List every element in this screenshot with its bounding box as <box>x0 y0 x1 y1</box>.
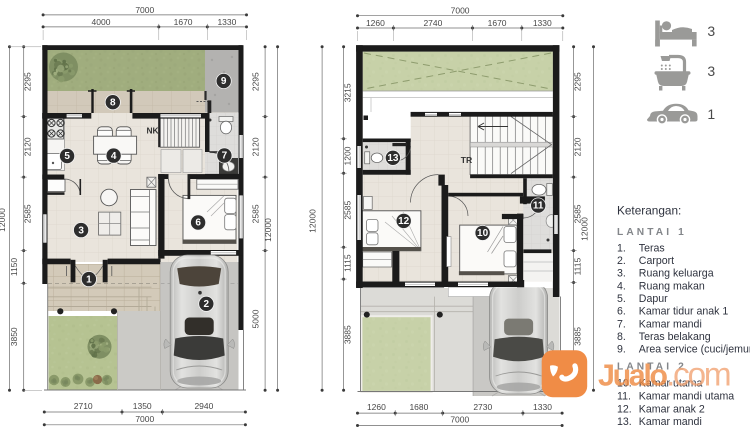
svg-text:6: 6 <box>195 218 201 229</box>
svg-text:5000: 5000 <box>250 309 260 328</box>
svg-text:NK: NK <box>146 126 158 136</box>
svg-text:7000: 7000 <box>135 414 154 424</box>
svg-text:1115: 1115 <box>572 258 582 276</box>
svg-text:3215: 3215 <box>342 83 352 102</box>
svg-text:12000: 12000 <box>579 217 589 241</box>
svg-text:Kamar anak 2: Kamar anak 2 <box>639 403 705 415</box>
svg-text:Kamar tidur anak 1: Kamar tidur anak 1 <box>639 306 729 318</box>
svg-text:Keterangan:: Keterangan: <box>617 204 681 218</box>
svg-text:1260: 1260 <box>366 18 385 28</box>
svg-text:Teras belakang: Teras belakang <box>639 331 711 343</box>
svg-text:5: 5 <box>64 151 70 162</box>
svg-text:9: 9 <box>221 76 227 87</box>
svg-text:2585: 2585 <box>250 204 260 223</box>
svg-text:3885: 3885 <box>342 325 352 344</box>
svg-text:7: 7 <box>222 151 228 162</box>
svg-text:3885: 3885 <box>572 327 582 346</box>
svg-text:Teras: Teras <box>639 242 665 254</box>
svg-text:Kamar mandi: Kamar mandi <box>639 318 702 330</box>
svg-text:Ruang makan: Ruang makan <box>639 280 705 292</box>
svg-text:8: 8 <box>110 97 116 108</box>
svg-text:1670: 1670 <box>174 17 193 27</box>
svg-text:13.: 13. <box>617 416 632 428</box>
svg-text:7.: 7. <box>617 318 626 330</box>
svg-text:7000: 7000 <box>451 6 470 16</box>
svg-text:.com: .com <box>666 357 730 394</box>
svg-text:1680: 1680 <box>409 402 428 412</box>
svg-text:1200: 1200 <box>342 146 352 165</box>
svg-text:2120: 2120 <box>250 137 260 156</box>
svg-text:1350: 1350 <box>133 401 152 411</box>
svg-text:1260: 1260 <box>367 402 386 412</box>
svg-text:2295: 2295 <box>572 72 582 91</box>
svg-text:9.: 9. <box>617 344 626 356</box>
svg-text:8.: 8. <box>617 331 626 343</box>
svg-text:2295: 2295 <box>250 72 260 91</box>
svg-text:3: 3 <box>707 23 715 39</box>
svg-text:2.: 2. <box>617 255 626 267</box>
svg-text:2: 2 <box>204 299 210 310</box>
svg-text:7000: 7000 <box>450 415 469 425</box>
svg-text:5.: 5. <box>617 293 626 305</box>
svg-text:3: 3 <box>707 63 715 79</box>
svg-text:13: 13 <box>387 153 399 164</box>
svg-text:2585: 2585 <box>342 200 352 219</box>
svg-text:2940: 2940 <box>194 401 213 411</box>
svg-text:11: 11 <box>533 201 544 212</box>
svg-text:1330: 1330 <box>533 402 552 412</box>
svg-text:12.: 12. <box>617 403 632 415</box>
svg-text:10: 10 <box>477 228 489 239</box>
svg-text:2740: 2740 <box>423 18 442 28</box>
svg-text:2120: 2120 <box>572 137 582 156</box>
svg-text:4.: 4. <box>617 280 626 292</box>
svg-text:1.: 1. <box>617 242 626 254</box>
svg-text:TR: TR <box>461 155 473 165</box>
svg-text:Carport: Carport <box>639 255 674 267</box>
svg-text:12000: 12000 <box>0 208 7 232</box>
svg-text:1670: 1670 <box>488 18 507 28</box>
svg-text:2730: 2730 <box>473 402 492 412</box>
svg-text:Dapur: Dapur <box>639 293 668 305</box>
svg-text:12000: 12000 <box>263 218 273 242</box>
svg-text:7000: 7000 <box>135 5 154 15</box>
svg-text:1: 1 <box>707 106 715 122</box>
svg-text:1150: 1150 <box>9 258 19 277</box>
svg-text:12: 12 <box>398 216 410 227</box>
svg-text:Jualo: Jualo <box>598 359 667 393</box>
svg-text:2295: 2295 <box>23 72 33 91</box>
svg-text:2585: 2585 <box>23 204 33 223</box>
svg-text:3.: 3. <box>617 268 626 280</box>
svg-text:4000: 4000 <box>92 17 111 27</box>
svg-text:4: 4 <box>111 151 117 162</box>
svg-text:Kamar mandi: Kamar mandi <box>639 416 702 428</box>
svg-text:LANTAI 1: LANTAI 1 <box>617 227 687 238</box>
svg-text:Area service (cuci/jemur): Area service (cuci/jemur) <box>639 344 750 356</box>
svg-text:1: 1 <box>86 274 92 285</box>
svg-text:Ruang keluarga: Ruang keluarga <box>639 268 714 280</box>
svg-text:2710: 2710 <box>74 401 93 411</box>
svg-text:12000: 12000 <box>307 209 317 233</box>
svg-text:3850: 3850 <box>9 327 19 346</box>
svg-text:1330: 1330 <box>533 18 552 28</box>
svg-text:1115: 1115 <box>342 254 352 272</box>
svg-text:6.: 6. <box>617 306 626 318</box>
svg-text:2120: 2120 <box>23 137 33 156</box>
svg-text:1330: 1330 <box>217 17 236 27</box>
svg-text:3: 3 <box>78 225 84 236</box>
